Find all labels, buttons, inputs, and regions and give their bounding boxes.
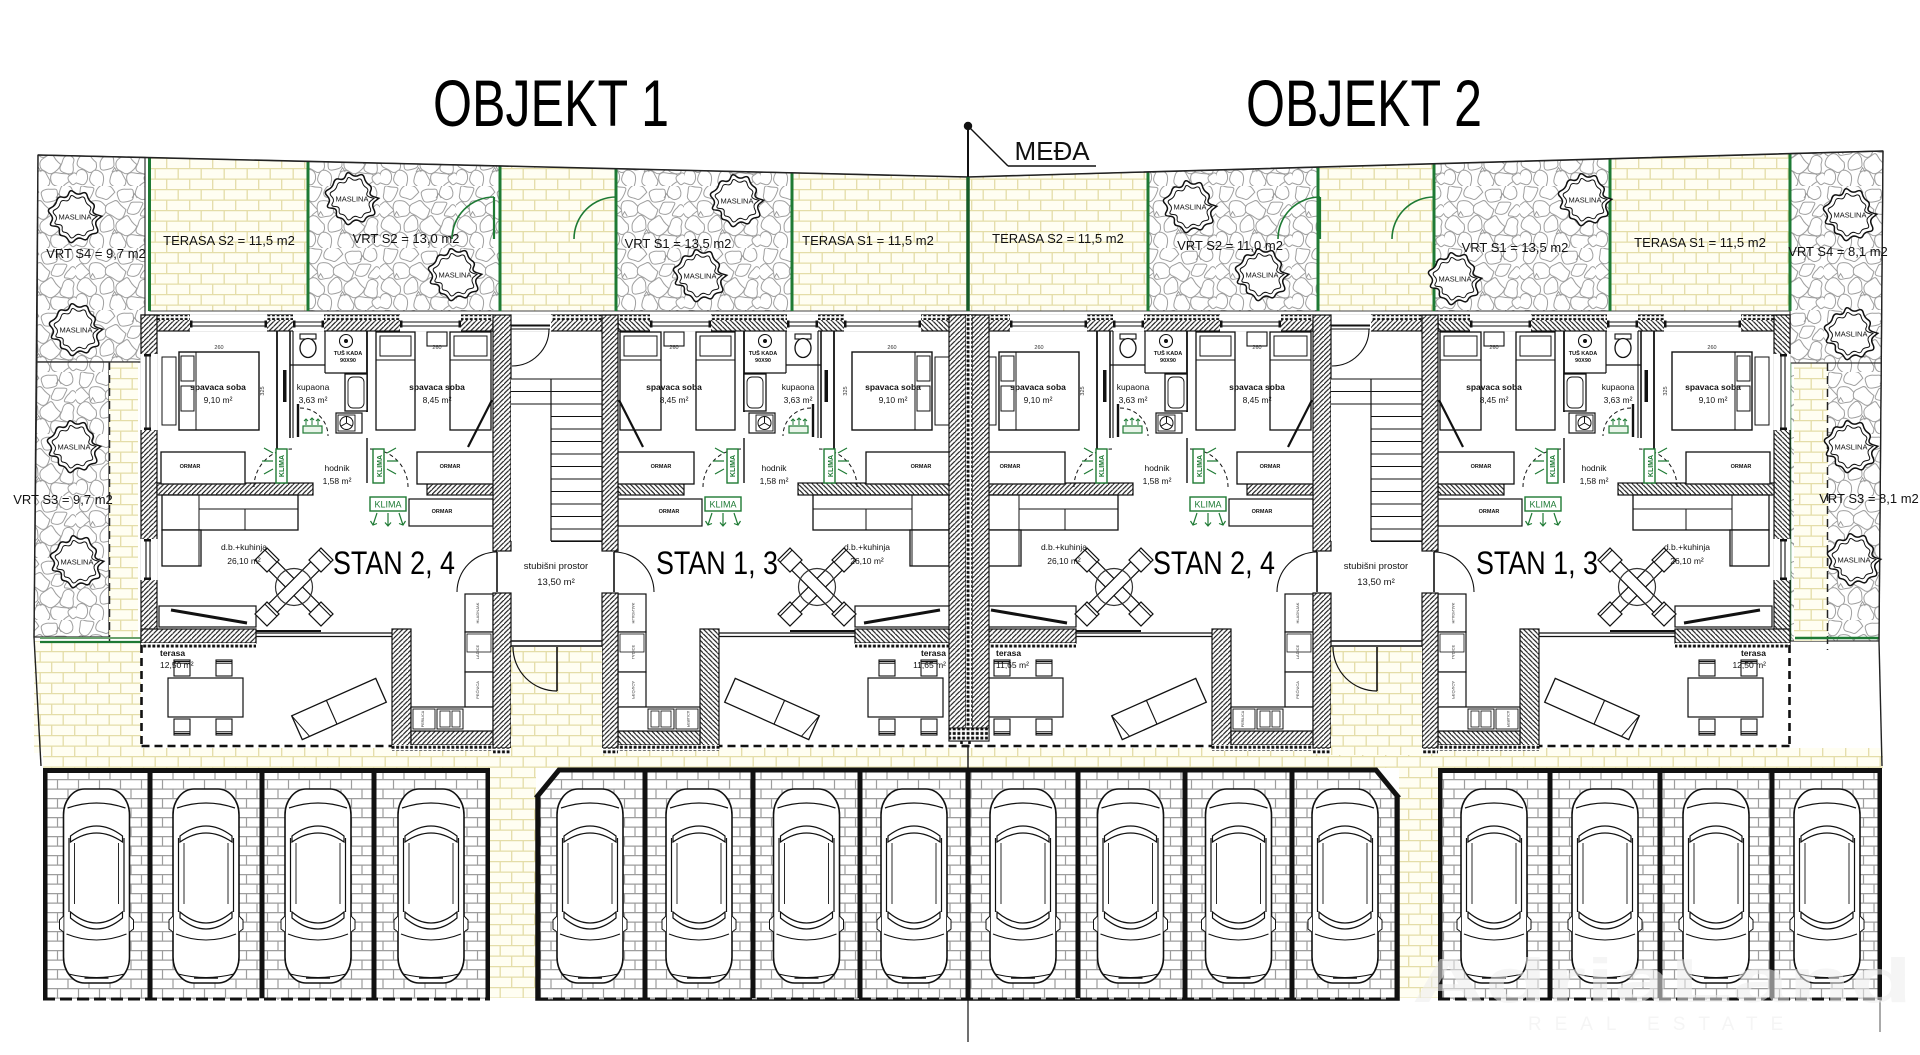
svg-text:kupaona: kupaona [782,382,815,392]
svg-text:26,10 m²: 26,10 m² [1670,556,1704,566]
svg-text:8,45 m²: 8,45 m² [660,395,689,405]
svg-text:1,58 m²: 1,58 m² [1143,476,1172,486]
svg-text:TUŠ KADA: TUŠ KADA [1569,349,1597,357]
svg-text:8,45 m²: 8,45 m² [1480,395,1509,405]
svg-text:13,50 m²: 13,50 m² [537,577,575,588]
svg-text:VRT S3 = 9,7 m2: VRT S3 = 9,7 m2 [13,492,113,507]
svg-text:325: 325 [1663,386,1669,395]
svg-text:KLIMA: KLIMA [1550,455,1557,477]
svg-text:ORMAR: ORMAR [432,509,453,515]
svg-text:260: 260 [214,345,223,351]
svg-text:3,63 m²: 3,63 m² [784,395,813,405]
svg-text:VRT S1 = 13,5 m2: VRT S1 = 13,5 m2 [625,236,732,251]
svg-text:260: 260 [1707,345,1716,351]
svg-text:STAN 2, 4: STAN 2, 4 [1153,545,1275,581]
svg-text:TUŠ KADA: TUŠ KADA [1154,349,1182,357]
svg-text:spavaca soba: spavaca soba [1010,382,1066,392]
svg-text:stubišni prostor: stubišni prostor [1344,561,1408,572]
svg-text:spavaca soba: spavaca soba [190,382,246,392]
svg-text:stubišni prostor: stubišni prostor [524,561,588,572]
svg-text:KLIMA: KLIMA [1194,500,1221,510]
svg-text:ORMAR: ORMAR [1471,464,1492,470]
svg-text:260: 260 [669,345,678,351]
svg-text:9,10 m²: 9,10 m² [879,395,908,405]
svg-text:260: 260 [1489,345,1498,351]
svg-text:hodnik: hodnik [1581,463,1607,473]
svg-text:ORMAR: ORMAR [911,464,932,470]
svg-text:325: 325 [843,386,849,395]
svg-text:VRT S3 = 8,1 m2: VRT S3 = 8,1 m2 [1819,491,1919,506]
svg-text:ORMAR: ORMAR [180,464,201,470]
svg-text:spavaca soba: spavaca soba [1229,382,1285,392]
svg-text:26,10 m²: 26,10 m² [227,556,261,566]
svg-text:VRT S2 = 11,0 m2: VRT S2 = 11,0 m2 [1177,238,1283,253]
svg-text:d.b.+kuhinja: d.b.+kuhinja [221,542,267,552]
svg-text:1,58 m²: 1,58 m² [323,476,352,486]
svg-text:TERASA S2 = 11,5 m2: TERASA S2 = 11,5 m2 [992,231,1124,246]
svg-text:kupaona: kupaona [1602,382,1635,392]
svg-text:spavaca soba: spavaca soba [409,382,465,392]
svg-text:90X90: 90X90 [755,358,771,364]
svg-text:ORMAR: ORMAR [1731,464,1752,470]
svg-text:TERASA S1 = 11,5 m2: TERASA S1 = 11,5 m2 [802,233,934,248]
svg-text:hodnik: hodnik [324,463,350,473]
svg-text:ORMAR: ORMAR [1260,464,1281,470]
svg-text:kupaona: kupaona [1117,382,1150,392]
svg-text:TUŠ KADA: TUŠ KADA [334,349,362,357]
svg-text:KLIMA: KLIMA [377,455,384,477]
svg-text:3,63 m²: 3,63 m² [1604,395,1633,405]
svg-text:3,63 m²: 3,63 m² [1119,395,1148,405]
svg-text:13,50 m²: 13,50 m² [1357,577,1395,588]
svg-text:11,65 m²: 11,65 m² [996,660,1029,670]
svg-text:hodnik: hodnik [1144,463,1170,473]
svg-text:KLIMA: KLIMA [1197,455,1204,477]
svg-text:KLIMA: KLIMA [279,455,286,477]
svg-text:VRT S4 = 9,7 m2: VRT S4 = 9,7 m2 [46,246,146,261]
svg-text:TUŠ KADA: TUŠ KADA [749,349,777,357]
svg-text:OBJEKT 2: OBJEKT 2 [1246,66,1482,140]
svg-text:12,50 m²: 12,50 m² [160,660,194,670]
svg-text:hodnik: hodnik [761,463,787,473]
svg-text:VRT S2 = 13,0 m2: VRT S2 = 13,0 m2 [353,231,460,246]
svg-text:26,10 m²: 26,10 m² [1047,556,1081,566]
svg-text:8,45 m²: 8,45 m² [423,395,452,405]
svg-text:KLIMA: KLIMA [1648,455,1655,477]
svg-text:260: 260 [432,345,441,351]
svg-text:9,10 m²: 9,10 m² [1024,395,1053,405]
svg-text:KLIMA: KLIMA [1099,455,1106,477]
svg-text:d.b.+kuhinja: d.b.+kuhinja [844,542,890,552]
svg-text:TERASA S2 = 11,5 m2: TERASA S2 = 11,5 m2 [163,233,295,248]
svg-text:MEĐA: MEĐA [1014,136,1090,166]
svg-text:90X90: 90X90 [1575,358,1591,364]
svg-text:90X90: 90X90 [1160,358,1176,364]
svg-text:STAN 1, 3: STAN 1, 3 [656,545,778,581]
svg-text:d.b.+kuhinja: d.b.+kuhinja [1664,542,1710,552]
svg-text:TERASA S1 = 11,5 m2: TERASA S1 = 11,5 m2 [1634,235,1766,250]
svg-text:KLIMA: KLIMA [374,500,401,510]
svg-text:spavaca soba: spavaca soba [1466,382,1522,392]
svg-text:260: 260 [887,345,896,351]
svg-text:90X90: 90X90 [340,358,356,364]
svg-text:260: 260 [1252,345,1261,351]
svg-text:STAN 2, 4: STAN 2, 4 [333,545,455,581]
svg-text:ORMAR: ORMAR [1000,464,1021,470]
svg-text:26,10 m²: 26,10 m² [850,556,884,566]
svg-text:VRT S4 = 8,1 m2: VRT S4 = 8,1 m2 [1788,244,1888,259]
svg-text:325: 325 [1080,386,1086,395]
svg-text:325: 325 [260,386,266,395]
svg-text:spavaca soba: spavaca soba [865,382,921,392]
svg-text:kupaona: kupaona [297,382,330,392]
svg-text:1,58 m²: 1,58 m² [1580,476,1609,486]
svg-text:terasa: terasa [996,648,1021,658]
svg-text:VRT S1 = 13,5 m2: VRT S1 = 13,5 m2 [1462,240,1569,255]
svg-text:spavaca soba: spavaca soba [1685,382,1741,392]
svg-text:11,65 m²: 11,65 m² [913,660,946,670]
svg-text:d.b.+kuhinja: d.b.+kuhinja [1041,542,1087,552]
svg-text:9,10 m²: 9,10 m² [204,395,233,405]
svg-text:KLIMA: KLIMA [709,500,736,510]
svg-text:ORMAR: ORMAR [651,464,672,470]
svg-text:9,10 m²: 9,10 m² [1699,395,1728,405]
svg-text:KLIMA: KLIMA [828,455,835,477]
svg-text:ORMAR: ORMAR [440,464,461,470]
svg-text:1,58 m²: 1,58 m² [760,476,789,486]
svg-text:ORMAR: ORMAR [1479,509,1500,515]
svg-text:terasa: terasa [160,648,185,658]
svg-text:3,63 m²: 3,63 m² [299,395,328,405]
svg-text:STAN 1, 3: STAN 1, 3 [1476,545,1598,581]
svg-text:12,50 m²: 12,50 m² [1732,660,1766,670]
svg-text:KLIMA: KLIMA [730,455,737,477]
svg-text:AdriaLand: AdriaLand [1412,947,1912,1016]
svg-text:ORMAR: ORMAR [1252,509,1273,515]
svg-text:KLIMA: KLIMA [1529,500,1556,510]
svg-text:REAL ESTATE: REAL ESTATE [1528,1014,1796,1035]
svg-text:ORMAR: ORMAR [659,509,680,515]
svg-text:terasa: terasa [921,648,946,658]
svg-text:spavaca soba: spavaca soba [646,382,702,392]
svg-text:8,45 m²: 8,45 m² [1243,395,1272,405]
svg-text:OBJEKT 1: OBJEKT 1 [433,66,669,140]
svg-text:260: 260 [1034,345,1043,351]
svg-text:terasa: terasa [1741,648,1766,658]
